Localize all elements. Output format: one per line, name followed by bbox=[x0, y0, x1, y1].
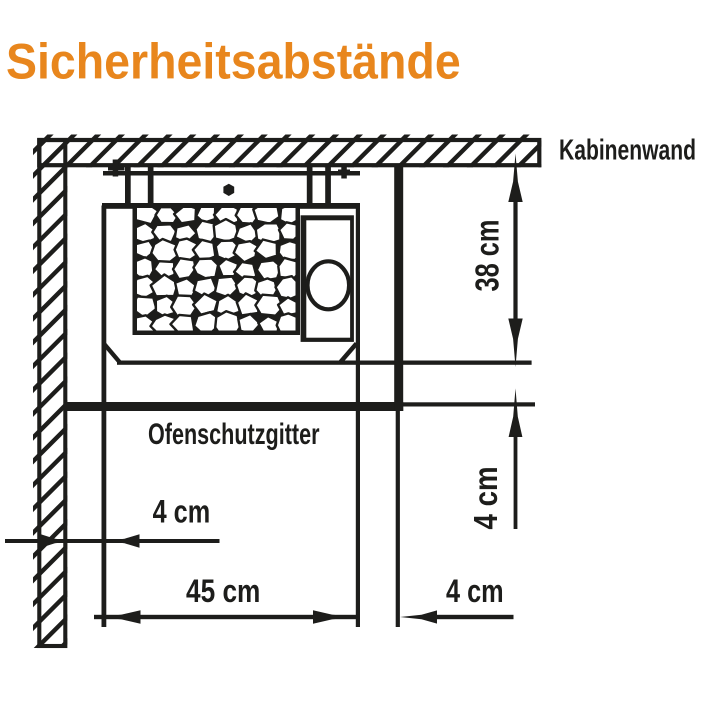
svg-text:Sicherheitsabstände: Sicherheitsabstände bbox=[6, 34, 461, 90]
svg-text:4 cm: 4 cm bbox=[468, 466, 505, 529]
svg-text:45 cm: 45 cm bbox=[186, 575, 260, 610]
svg-text:38 cm: 38 cm bbox=[469, 219, 506, 291]
svg-text:Ofenschutzgitter: Ofenschutzgitter bbox=[148, 416, 320, 450]
svg-text:4 cm: 4 cm bbox=[153, 495, 211, 531]
svg-text:Kabinenwand: Kabinenwand bbox=[559, 134, 696, 166]
svg-text:4 cm: 4 cm bbox=[446, 574, 504, 610]
